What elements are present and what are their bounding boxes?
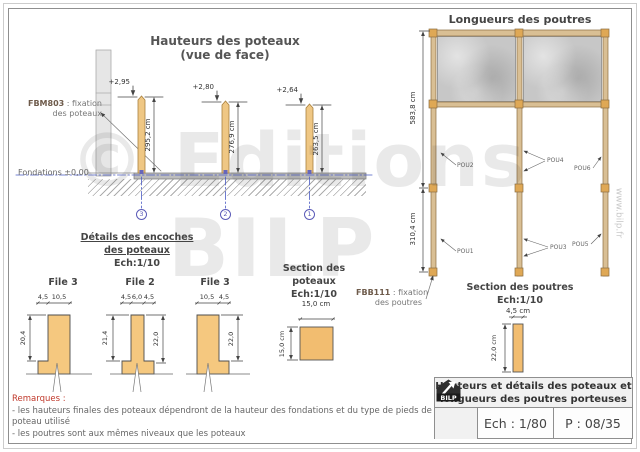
height-dim-post3: 295,2 cm	[144, 119, 152, 152]
beam-plan-drawing	[419, 29, 609, 299]
beam-section-drawing	[502, 316, 527, 373]
file-label-1: File 3	[48, 276, 77, 289]
sheet-title: Hauteurs et détails des poteaux et longu…	[435, 378, 632, 408]
post-fixation-code: FBM803	[28, 99, 64, 108]
post-section-height-dim: 15,0 cm	[279, 331, 287, 357]
label-pou2: POU2	[457, 162, 474, 169]
elevation-title-line2: (vue de face)	[150, 48, 299, 62]
beam-right	[603, 30, 608, 276]
beam-length-dimensions	[419, 31, 430, 272]
axis-lines	[16, 175, 372, 208]
label-pou5: POU5	[572, 241, 589, 248]
label-pou4: POU4	[547, 157, 564, 164]
level-label-post2: +2,80	[166, 83, 214, 91]
post-section-drawing	[287, 318, 335, 361]
beam-section-scale: Ech:1/10	[467, 294, 574, 307]
post-fixation-label: FBM803 : fixation des poteaux	[18, 99, 102, 118]
post-section-width-dim: 15,0 cm	[302, 300, 330, 308]
bilp-logo-icon: BILP	[435, 378, 462, 403]
notch-details-title: Détails des encoches des poteaux Ech:1/1…	[81, 231, 194, 270]
beam-length-top-dim: 583,8 cm	[409, 92, 417, 125]
bilp-logo: BILP	[435, 408, 478, 439]
beam-plan-title: Longueurs des poutres	[449, 13, 592, 26]
elevation-title: Hauteurs des poteaux (vue de face)	[150, 34, 299, 62]
scale-cell: Ech : 1/80	[478, 408, 554, 439]
beam-length-bottom-dim: 310,4 cm	[409, 213, 417, 246]
beam-fixation-code: FBB111	[356, 288, 390, 297]
title-block: Hauteurs et détails des poteaux et longu…	[434, 377, 633, 439]
remark-line-1: - les hauteurs finales des poteaux dépen…	[12, 406, 434, 429]
label-pou3: POU3	[550, 244, 567, 251]
beam-fixation-label: FBB111 : fixation des poutres	[356, 288, 422, 307]
beam-left	[431, 30, 436, 276]
level-label-post3: +2,95	[82, 78, 130, 86]
file-label-3: File 3	[200, 276, 229, 289]
beam-section-height-dim: 22,0 cm	[491, 335, 499, 361]
remarks-heading: Remarques :	[12, 394, 434, 406]
axis-bubble-1: 1	[304, 209, 315, 220]
post-section-square	[300, 327, 333, 360]
level-label-post1: +2,64	[250, 86, 298, 94]
label-pou6: POU6	[574, 165, 591, 172]
notch-file3-right	[197, 315, 229, 374]
plan-sheet: Hauteurs des poteaux (vue de face) FBM80…	[0, 0, 640, 452]
remarks: Remarques : - les hauteurs finales des p…	[12, 394, 434, 440]
label-pou1: POU1	[457, 248, 474, 255]
foundation-strip	[134, 173, 366, 179]
notch-file2	[122, 315, 154, 374]
page-number-cell: P : 08/35	[554, 408, 632, 439]
beam-middle	[517, 30, 522, 276]
beam-section-width-dim: 4,5 cm	[506, 307, 530, 315]
height-dim-post1: 263,5 cm	[312, 123, 320, 156]
height-dim-post2: 276,9 cm	[228, 121, 236, 154]
svg-text:BILP: BILP	[440, 394, 457, 402]
axis-bubble-3: 3	[136, 209, 147, 220]
beam-section-title: Section des poutres Ech:1/10	[467, 281, 574, 307]
axis-bubble-2: 2	[220, 209, 231, 220]
watermark-site: www.bilp.fr	[613, 188, 624, 238]
height-dimensions	[145, 97, 331, 172]
elevation-title-line1: Hauteurs des poteaux	[150, 34, 299, 48]
file-label-2: File 2	[125, 276, 154, 289]
post-section-title: Section des poteaux Ech:1/10	[283, 262, 345, 301]
foundation-label: Fondations ±0,00	[18, 168, 89, 178]
remark-line-2: - les poutres sont aux mêmes niveaux que…	[12, 429, 434, 441]
notch-details-scale: Ech:1/10	[81, 257, 194, 270]
notch-file3-left	[38, 315, 70, 374]
beam-section-rect	[513, 324, 523, 372]
notch-details-drawing	[26, 302, 250, 393]
